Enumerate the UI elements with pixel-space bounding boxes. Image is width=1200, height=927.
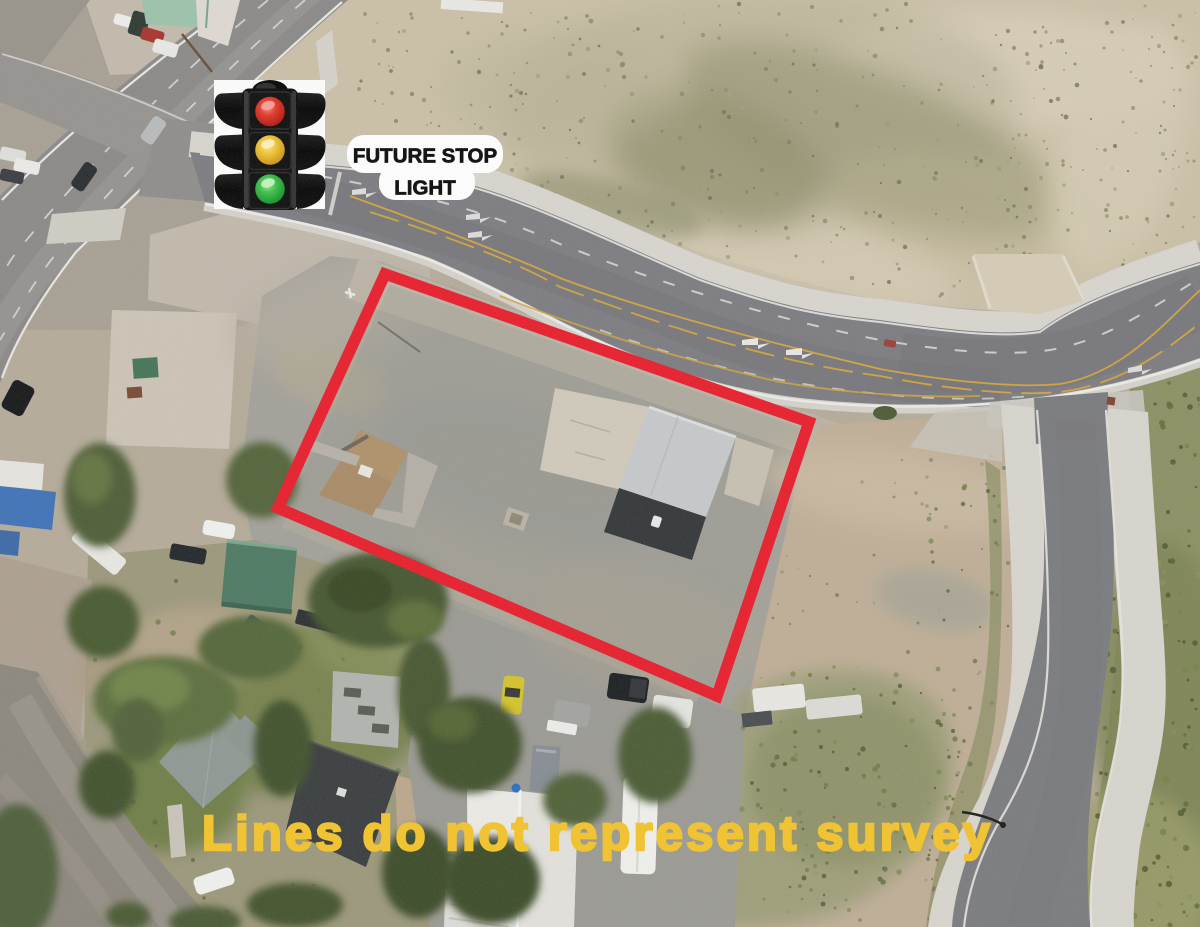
- svg-text:Lines do not represent survey: Lines do not represent survey: [202, 807, 993, 861]
